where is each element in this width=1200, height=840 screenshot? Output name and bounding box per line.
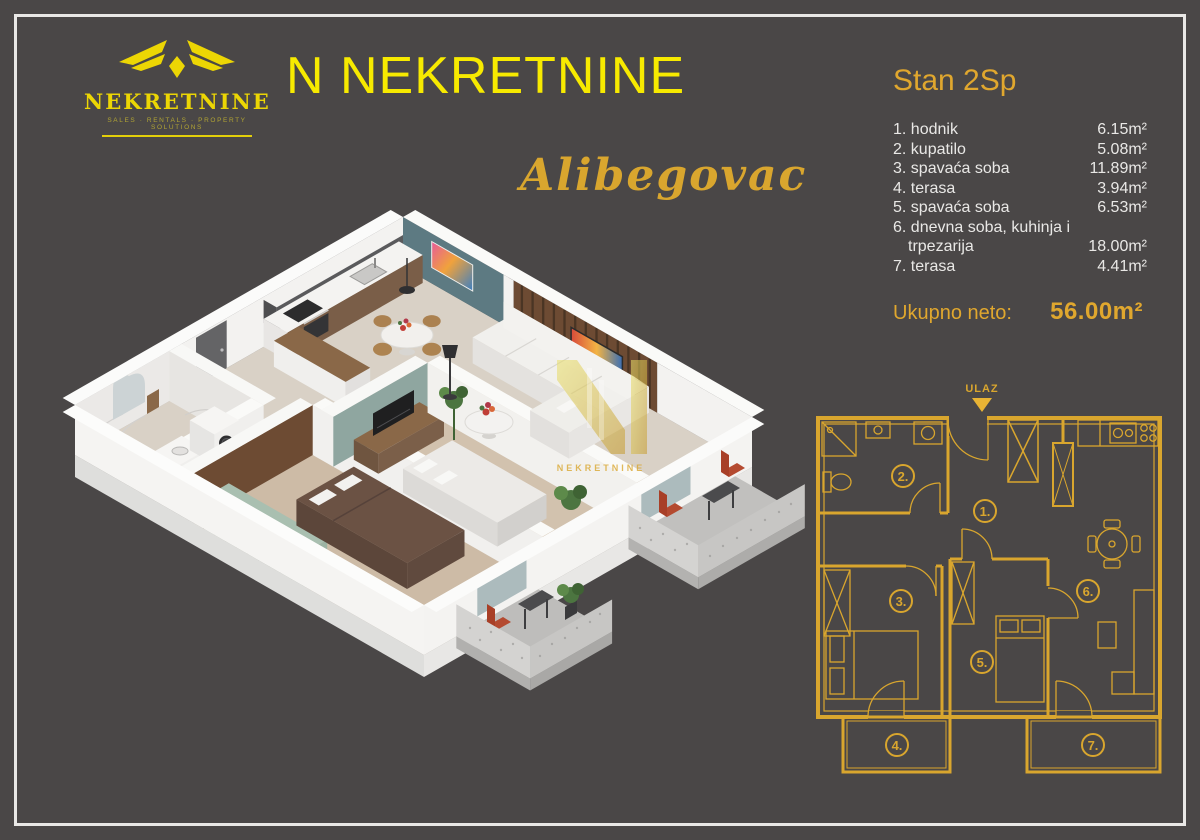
room-number: 2.	[898, 469, 909, 484]
room-name: 4. terasa	[893, 179, 955, 199]
bedroom3-furniture	[824, 570, 918, 699]
room-area: 3.94m²	[1097, 179, 1147, 199]
page-title: N NEKRETNINE	[286, 46, 726, 106]
room-number: 5.	[977, 655, 988, 670]
floorplan-2d: ULAZ	[810, 376, 1166, 788]
room-number: 6.	[1083, 584, 1094, 599]
bathroom-fixtures	[822, 422, 942, 492]
room-number: 7.	[1088, 738, 1099, 753]
brand-watermark: NEKRETNINE	[546, 358, 656, 473]
room-area: 6.15m²	[1097, 120, 1147, 140]
eagle-wings-icon	[117, 38, 237, 82]
room-name: 6. dnevna soba, kuhinja i trpezarija	[893, 218, 1088, 257]
pendant-lamp	[399, 286, 415, 294]
room-list-item: 5. spavaća soba 6.53m²	[893, 198, 1147, 218]
room-number: 3.	[896, 594, 907, 609]
room-list-item: 7. terasa 4.41m²	[893, 257, 1147, 277]
room-name: 3. spavaća soba	[893, 159, 1010, 179]
room-name: 1. hodnik	[893, 120, 958, 140]
room-list-item: 6. dnevna soba, kuhinja i trpezarija 18.…	[893, 218, 1147, 257]
room-list-item: 4. terasa 3.94m²	[893, 179, 1147, 199]
room-number: 1.	[980, 504, 991, 519]
total-row: Ukupno neto: 56.00m²	[893, 298, 1147, 326]
entrance-arrow-icon	[972, 398, 992, 412]
room-name: 2. kupatilo	[893, 140, 966, 160]
sofa-2d	[1098, 590, 1154, 694]
closet	[1008, 420, 1038, 482]
room-area: 4.41m²	[1097, 257, 1147, 277]
logo-underline	[102, 135, 252, 137]
unit-info-panel: Stan 2Sp 1. hodnik 6.15m² 2. kupatilo 5.…	[893, 64, 1147, 326]
bedroom5-furniture	[952, 562, 1044, 702]
room-name: 7. terasa	[893, 257, 955, 277]
entrance-label: ULAZ	[965, 383, 998, 395]
room-name: 5. spavaća soba	[893, 198, 1010, 218]
location-name: Alibegovac	[520, 150, 800, 201]
room-number: 4.	[892, 738, 903, 753]
watermark-text: NEKRETNINE	[546, 463, 656, 473]
flyer-canvas: NEKRETNINE NEKRETNINE SALES · RENTALS · …	[0, 0, 1200, 840]
dining-set	[1088, 520, 1140, 568]
room-list-item: 2. kupatilo 5.08m²	[893, 140, 1147, 160]
room-area: 11.89m²	[1089, 159, 1147, 179]
room-list-item: 3. spavaća soba 11.89m²	[893, 159, 1147, 179]
watermark-n-logo	[551, 358, 651, 456]
floorplan-3d-render	[25, 200, 805, 830]
logo-wordmark: NEKRETNINE	[84, 89, 270, 114]
total-label: Ukupno neto:	[893, 302, 1012, 325]
room-list-item: 1. hodnik 6.15m²	[893, 120, 1147, 140]
unit-title: Stan 2Sp	[893, 64, 1147, 98]
room-area: 18.00m²	[1088, 237, 1147, 257]
room-area: 5.08m²	[1097, 140, 1147, 160]
company-logo: NEKRETNINE SALES · RENTALS · PROPERTY SO…	[84, 38, 270, 137]
total-area-value: 56.00m²	[1050, 298, 1147, 326]
room-area: 6.53m²	[1097, 198, 1147, 218]
logo-tagline: SALES · RENTALS · PROPERTY SOLUTIONS	[84, 117, 270, 131]
